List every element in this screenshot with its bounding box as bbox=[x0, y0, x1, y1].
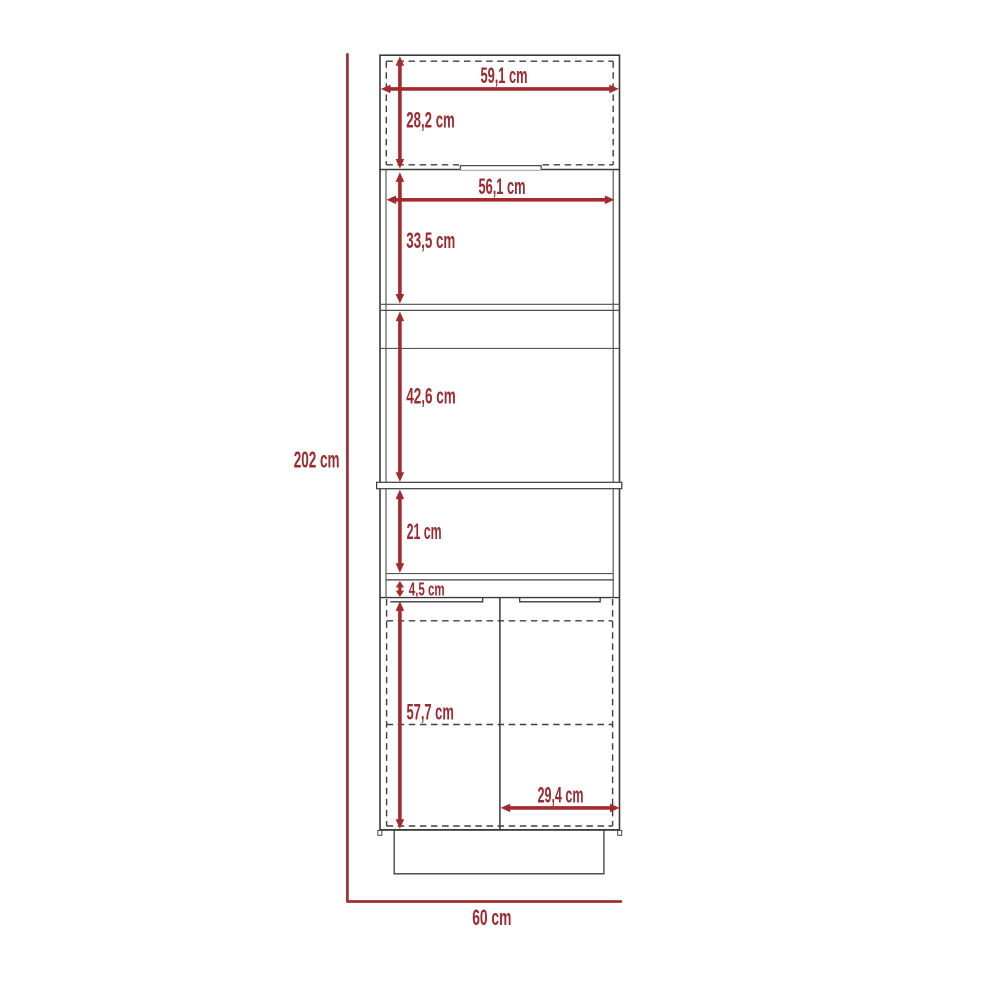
svg-text:4,5 cm: 4,5 cm bbox=[409, 579, 445, 600]
svg-text:21 cm: 21 cm bbox=[407, 519, 442, 544]
svg-text:59,1 cm: 59,1 cm bbox=[481, 63, 528, 88]
svg-text:28,2 cm: 28,2 cm bbox=[406, 107, 455, 132]
svg-text:57,7 cm: 57,7 cm bbox=[407, 699, 454, 724]
svg-text:42,6 cm: 42,6 cm bbox=[406, 383, 456, 408]
svg-text:33,5 cm: 33,5 cm bbox=[406, 228, 455, 253]
svg-text:60 cm: 60 cm bbox=[472, 905, 511, 930]
svg-text:29,4 cm: 29,4 cm bbox=[538, 783, 584, 808]
svg-text:202 cm: 202 cm bbox=[294, 446, 340, 472]
svg-text:56,1 cm: 56,1 cm bbox=[479, 174, 526, 199]
